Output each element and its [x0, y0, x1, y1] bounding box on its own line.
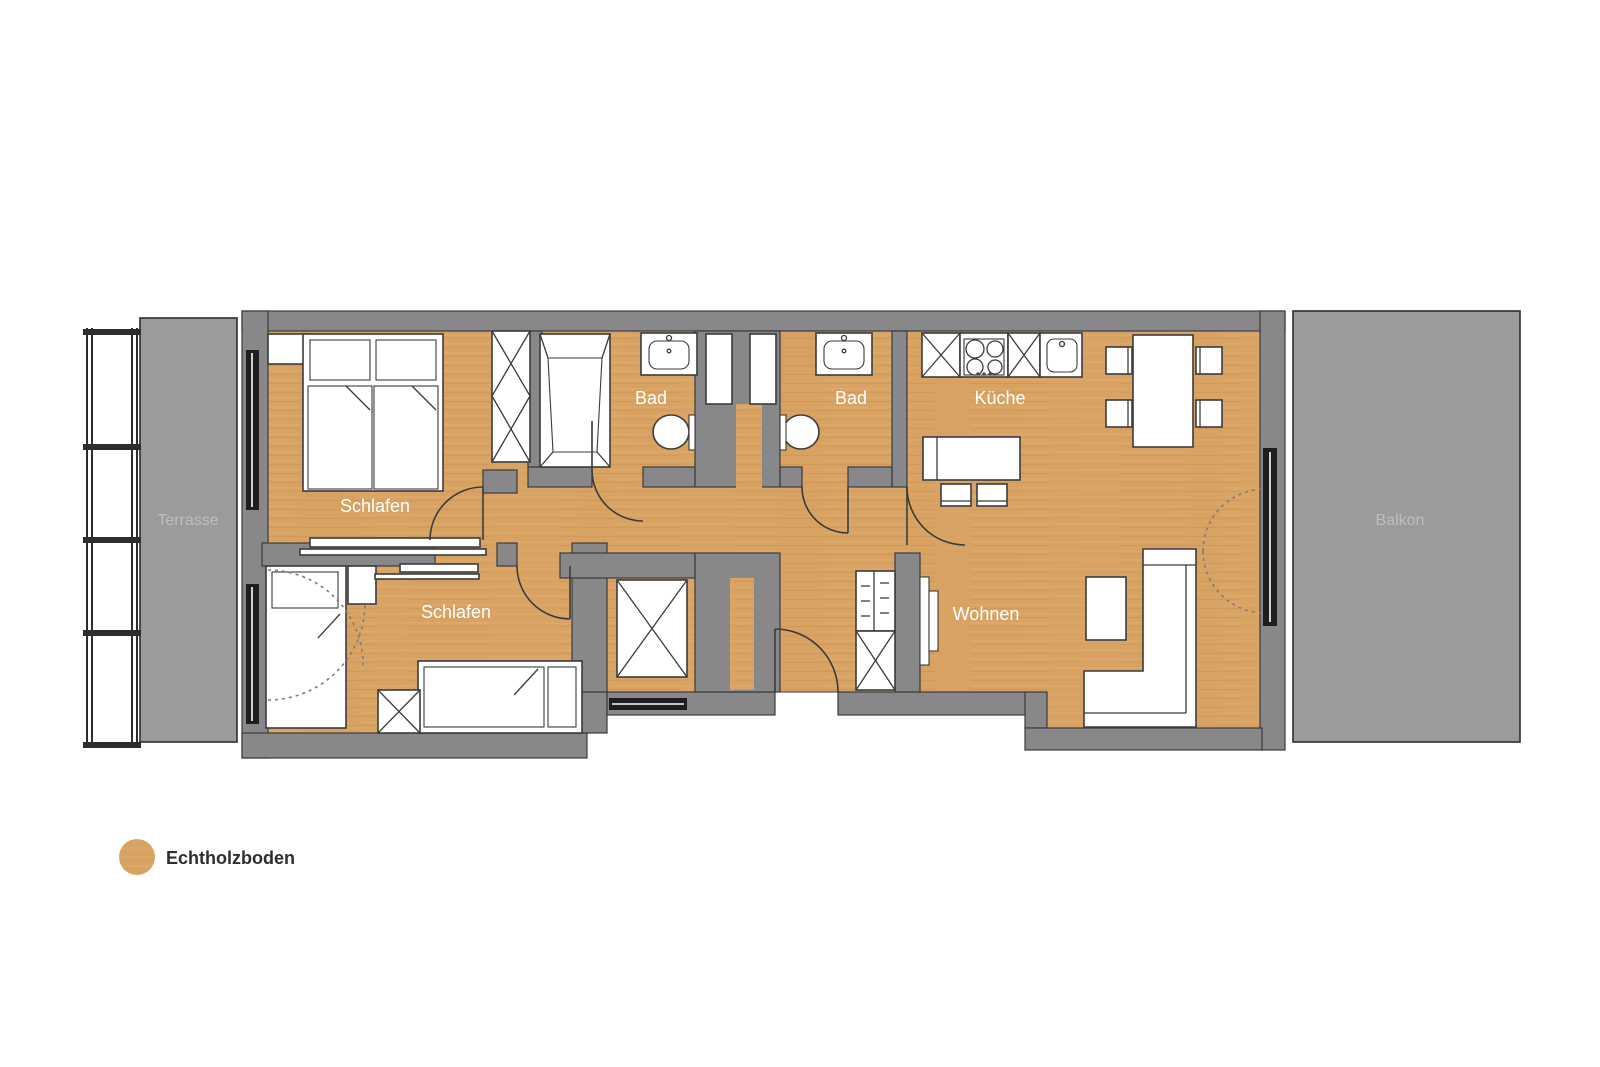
wall-bottom-left [242, 733, 587, 758]
sideboard [300, 549, 486, 555]
sideboard [310, 538, 480, 547]
basin [649, 341, 689, 369]
wall-bottom-right [1025, 728, 1262, 750]
room-label-kueche: Küche [974, 388, 1025, 408]
floor-plan-page: Schlafen Schlafen Bad Bad Küche Wohnen T… [0, 0, 1600, 1067]
toilet [653, 415, 689, 449]
legend-label: Echtholzboden [166, 848, 295, 868]
wall-bad2-right [892, 331, 907, 487]
sideboard [400, 564, 478, 572]
toilet [783, 415, 819, 449]
room-label-bad-2: Bad [835, 388, 867, 408]
dining-table [1133, 335, 1193, 447]
wall-top [242, 311, 1285, 331]
bath-niche [736, 404, 762, 488]
pillow [310, 340, 370, 380]
nightstand [348, 566, 376, 604]
floor-plan: Schlafen Schlafen Bad Bad Küche Wohnen T… [0, 0, 1600, 1067]
room-label-bad-1: Bad [635, 388, 667, 408]
wardrobe-icon [492, 331, 530, 462]
terrace [83, 318, 237, 748]
stool [977, 484, 1007, 506]
mattress [308, 386, 372, 489]
tv-board [920, 577, 929, 665]
mattress [374, 386, 438, 489]
wall-bottom-middle-right [838, 692, 1027, 715]
stool [941, 484, 971, 506]
legend-wood-swatch [119, 839, 155, 875]
room-label-wohnen: Wohnen [953, 604, 1020, 624]
room-label-schlafen-1: Schlafen [340, 496, 410, 516]
legend: Echtholzboden [119, 839, 295, 875]
room-label-balkon: Balkon [1376, 512, 1425, 529]
room-label-terrasse: Terrasse [157, 512, 218, 529]
coffee-table [1086, 577, 1126, 640]
pillow [376, 340, 436, 380]
wall-hall-living [895, 553, 920, 692]
closet [750, 334, 776, 404]
room-label-schlafen-2: Schlafen [421, 602, 491, 622]
sideboard [375, 574, 479, 579]
basin [824, 341, 864, 369]
mattress [424, 667, 544, 727]
nightstand [268, 334, 308, 364]
hall-niche [730, 578, 754, 690]
closet [706, 334, 732, 404]
